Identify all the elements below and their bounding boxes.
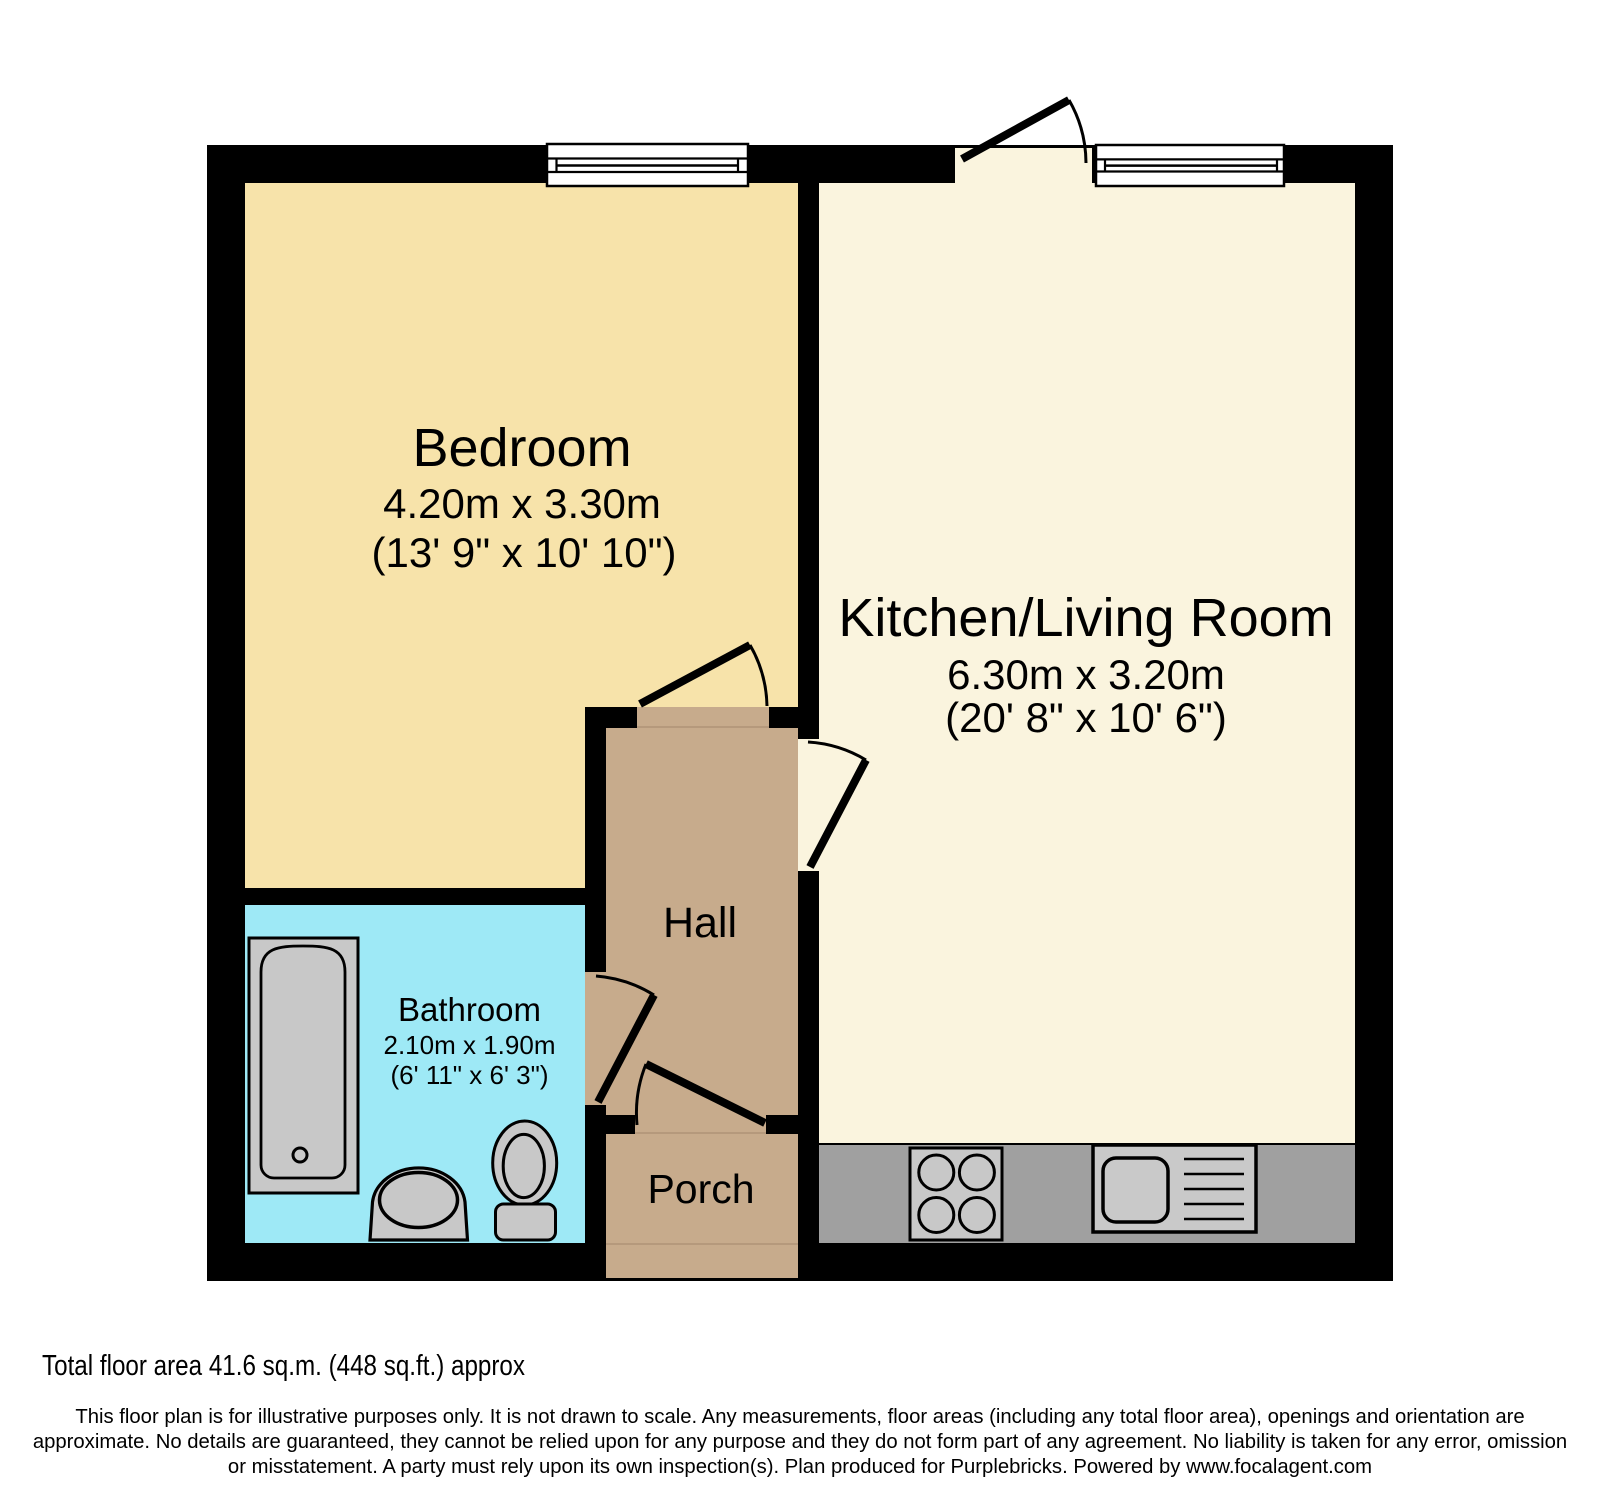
svg-text:Kitchen/Living Room: Kitchen/Living Room	[838, 588, 1333, 648]
svg-text:Hall: Hall	[663, 899, 737, 947]
svg-text:4.20m x 3.30m: 4.20m x 3.30m	[383, 480, 661, 527]
svg-text:6.30m x 3.20m: 6.30m x 3.20m	[947, 651, 1225, 698]
svg-text:Total floor area 41.6 sq.m. (4: Total floor area 41.6 sq.m. (448 sq.ft.)…	[42, 1350, 525, 1382]
svg-text:This floor plan is for illustr: This floor plan is for illustrative purp…	[75, 1406, 1524, 1428]
svg-text:(20' 8" x 10' 6"): (20' 8" x 10' 6")	[945, 694, 1227, 741]
svg-text:or misstatement. A party must: or misstatement. A party must rely upon …	[228, 1456, 1372, 1478]
svg-text:approximate. No details are gu: approximate. No details are guaranteed, …	[33, 1431, 1567, 1453]
svg-text:2.10m x 1.90m: 2.10m x 1.90m	[384, 1030, 556, 1060]
svg-text:Bathroom: Bathroom	[398, 991, 541, 1028]
svg-text:Porch: Porch	[647, 1166, 754, 1212]
svg-text:Bedroom: Bedroom	[412, 418, 631, 478]
svg-text:(6' 11" x 6' 3"): (6' 11" x 6' 3")	[391, 1060, 549, 1090]
svg-text:(13' 9" x 10' 10"): (13' 9" x 10' 10")	[371, 529, 676, 576]
